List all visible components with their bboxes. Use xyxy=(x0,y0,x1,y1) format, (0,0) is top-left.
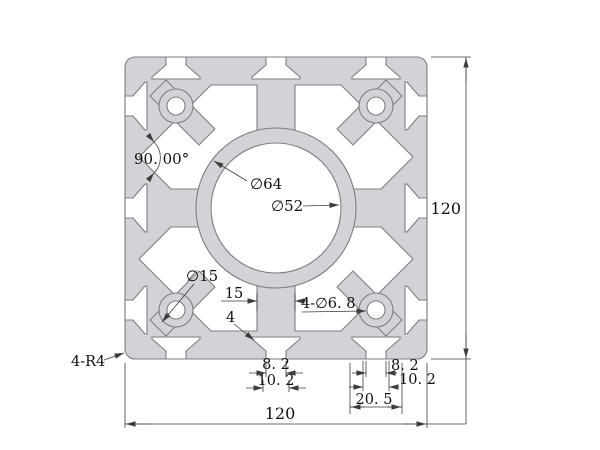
mounting-hole xyxy=(367,97,385,115)
label-slot-opening-left: 8. 2 xyxy=(262,357,290,373)
label-corner-radius: 4-R4 xyxy=(71,354,105,370)
label-slot-width-left: 10. 2 xyxy=(258,373,295,389)
label-dia52: ∅52 xyxy=(271,197,303,215)
drawing-page: 120 120 90. 00° ∅64 ∅52 xyxy=(0,0,600,450)
mounting-hole xyxy=(167,97,185,115)
dim-overall-height: 120 xyxy=(430,57,471,424)
label-dia64: ∅64 xyxy=(250,175,282,193)
mounting-hole xyxy=(367,301,385,319)
label-slot-width-right: 10. 2 xyxy=(399,372,436,388)
extrusion-profile-drawing: 120 120 90. 00° ∅64 ∅52 xyxy=(0,0,600,450)
label-angle: 90. 00° xyxy=(134,150,189,168)
mounting-hole xyxy=(167,301,185,319)
label-slot-span: 20. 5 xyxy=(356,392,393,408)
label-web-15: 15 xyxy=(225,286,243,302)
dim-corner-radius: 4-R4 xyxy=(71,353,124,370)
label-dia15: ∅15 xyxy=(186,267,218,285)
label-holes: 4-∅6. 8 xyxy=(301,296,355,312)
label-width-120: 120 xyxy=(265,404,296,423)
label-wall-4: 4 xyxy=(226,310,235,326)
dim-slot-center-width: 10. 2 xyxy=(246,373,306,392)
label-height-120: 120 xyxy=(430,199,461,218)
